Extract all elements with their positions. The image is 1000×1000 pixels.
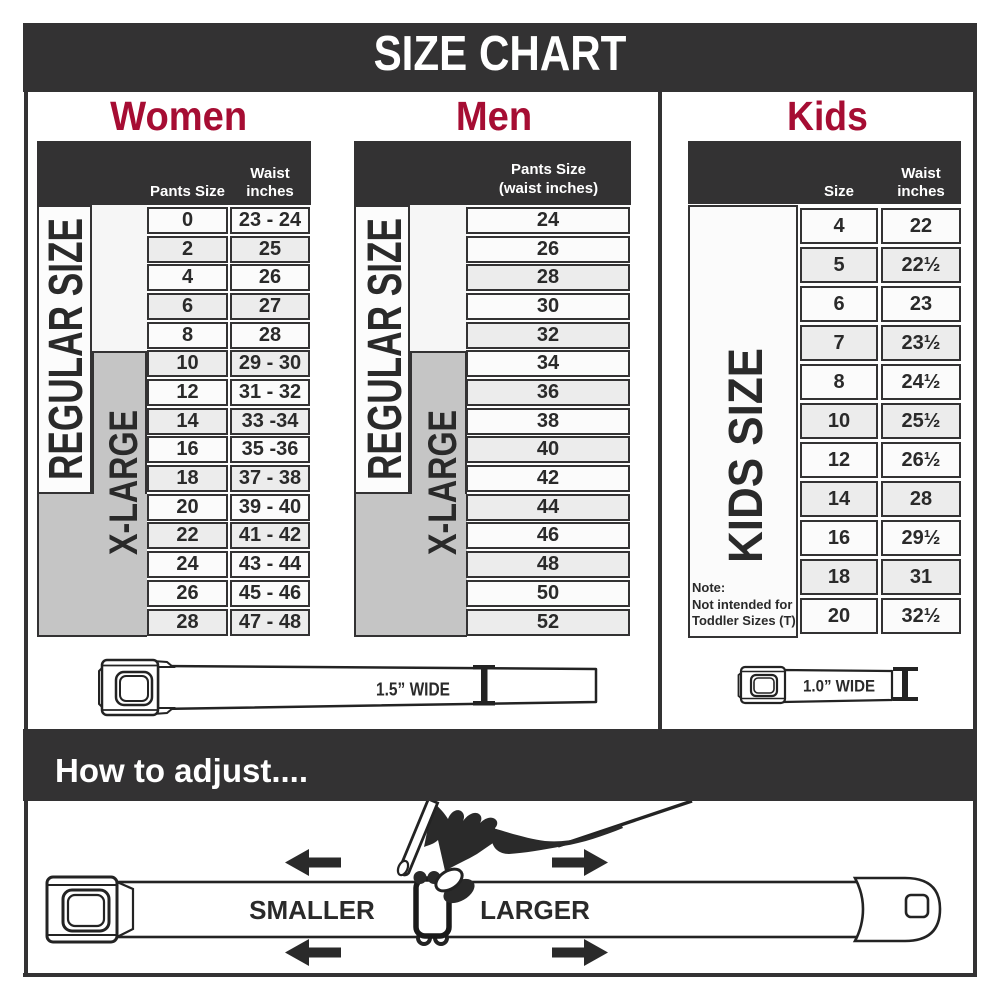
- svg-text:REGULAR SIZE: REGULAR SIZE: [359, 218, 410, 480]
- svg-text:1.0” WIDE: 1.0” WIDE: [803, 677, 875, 696]
- svg-text:1.5” WIDE: 1.5” WIDE: [376, 680, 450, 700]
- svg-text:X-LARGE: X-LARGE: [421, 410, 465, 555]
- svg-text:LARGER: LARGER: [480, 895, 590, 925]
- svg-text:X-LARGE: X-LARGE: [102, 410, 146, 555]
- svg-text:SMALLER: SMALLER: [249, 895, 375, 925]
- svg-text:REGULAR SIZE: REGULAR SIZE: [40, 218, 92, 480]
- svg-text:KIDS SIZE: KIDS SIZE: [720, 348, 773, 563]
